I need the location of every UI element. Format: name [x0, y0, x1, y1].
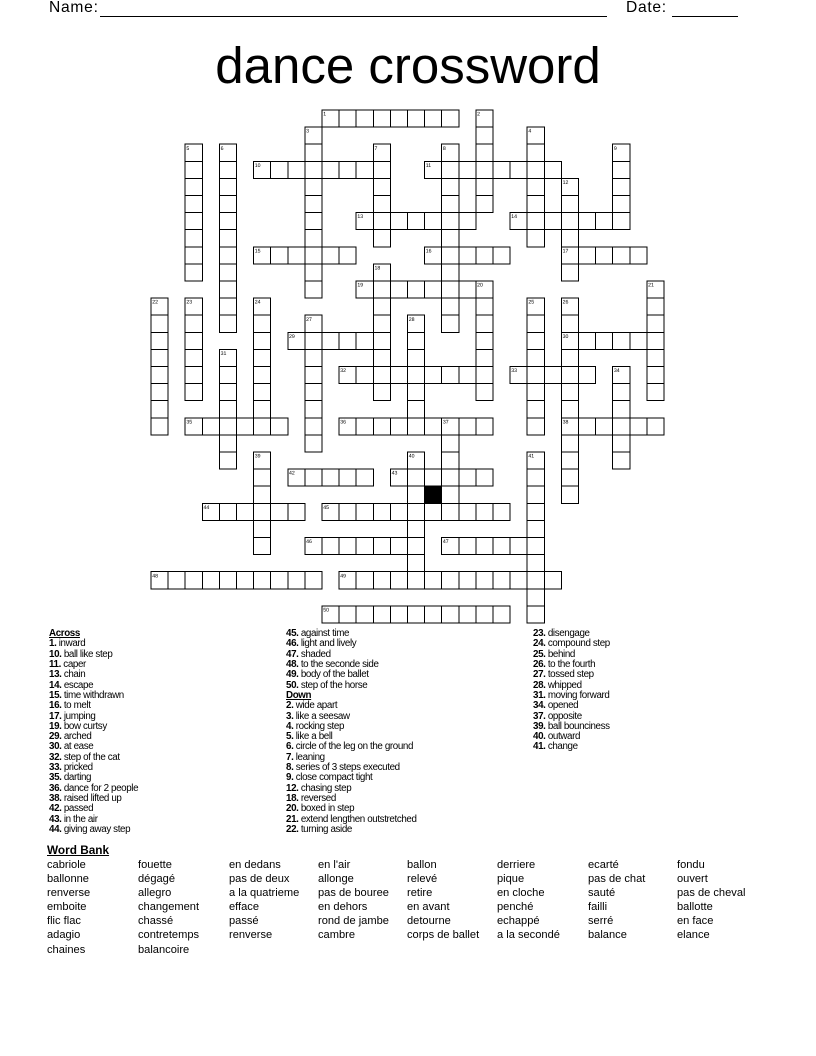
- svg-text:3: 3: [306, 129, 309, 135]
- svg-text:8: 8: [443, 146, 446, 152]
- svg-text:16: 16: [426, 248, 432, 254]
- svg-text:15: 15: [255, 248, 261, 254]
- svg-text:25: 25: [528, 300, 534, 306]
- svg-text:12: 12: [563, 180, 569, 186]
- svg-text:1: 1: [323, 112, 326, 118]
- svg-text:24: 24: [255, 300, 261, 306]
- svg-text:20: 20: [477, 283, 483, 289]
- svg-text:45: 45: [323, 505, 329, 511]
- svg-text:11: 11: [426, 163, 431, 169]
- svg-text:50: 50: [323, 608, 329, 614]
- svg-text:30: 30: [563, 334, 569, 340]
- svg-text:14: 14: [511, 214, 517, 220]
- svg-text:47: 47: [443, 539, 449, 545]
- svg-text:33: 33: [511, 368, 517, 374]
- svg-text:32: 32: [340, 368, 346, 374]
- svg-text:28: 28: [409, 317, 415, 323]
- svg-text:38: 38: [563, 419, 569, 425]
- svg-text:31: 31: [221, 351, 227, 357]
- svg-text:48: 48: [152, 573, 158, 579]
- svg-text:23: 23: [186, 300, 192, 306]
- svg-text:44: 44: [204, 505, 210, 511]
- svg-text:43: 43: [392, 471, 398, 477]
- svg-text:36: 36: [340, 419, 346, 425]
- svg-text:27: 27: [306, 317, 312, 323]
- svg-text:2: 2: [477, 112, 480, 118]
- svg-text:6: 6: [221, 146, 224, 152]
- svg-text:5: 5: [186, 146, 189, 152]
- svg-text:4: 4: [528, 129, 531, 135]
- svg-text:42: 42: [289, 471, 295, 477]
- svg-text:22: 22: [152, 300, 158, 306]
- svg-text:9: 9: [614, 146, 617, 152]
- svg-text:18: 18: [375, 266, 381, 272]
- svg-text:26: 26: [563, 300, 569, 306]
- svg-text:41: 41: [528, 454, 534, 460]
- svg-text:35: 35: [186, 419, 192, 425]
- svg-text:40: 40: [409, 454, 415, 460]
- svg-text:39: 39: [255, 454, 261, 460]
- svg-text:7: 7: [375, 146, 378, 152]
- svg-text:49: 49: [340, 573, 346, 579]
- svg-text:37: 37: [443, 419, 449, 425]
- svg-text:21: 21: [648, 283, 654, 289]
- svg-text:17: 17: [563, 248, 569, 254]
- svg-text:19: 19: [357, 283, 363, 289]
- svg-text:13: 13: [357, 214, 363, 220]
- svg-text:34: 34: [614, 368, 620, 374]
- svg-text:29: 29: [289, 334, 295, 340]
- svg-text:10: 10: [255, 163, 261, 169]
- svg-text:46: 46: [306, 539, 312, 545]
